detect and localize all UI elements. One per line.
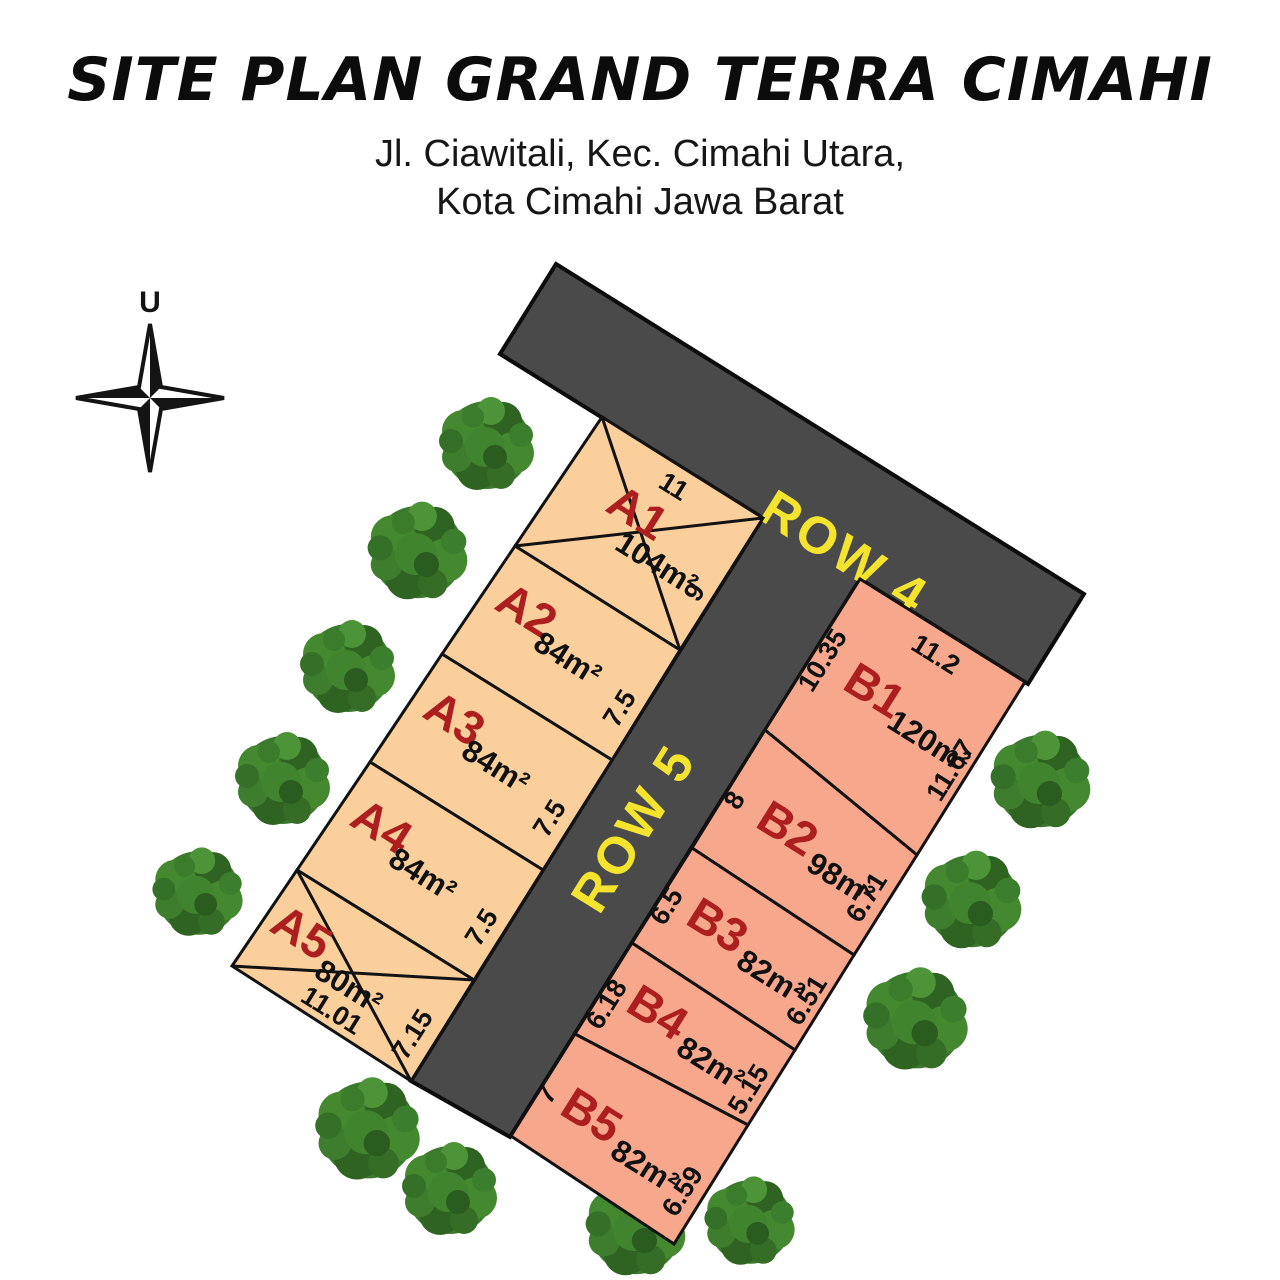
site-plan-canvas: SITE PLAN GRAND TERRA CIMAHI Jl. Ciawita… (0, 0, 1280, 1280)
address-line-2: Kota Cimahi Jawa Barat (436, 181, 844, 223)
north-indicator-label: U (139, 286, 161, 319)
compass-star-fill-east (150, 398, 224, 409)
compass-star-fill-north (150, 324, 161, 398)
tree-icon (439, 397, 534, 490)
header: SITE PLAN GRAND TERRA CIMAHI Jl. Ciawita… (67, 45, 1213, 223)
tree-icon (152, 847, 242, 935)
tree-icon (922, 851, 1022, 949)
tree-icon (300, 620, 395, 713)
tree-icon (704, 1176, 794, 1264)
site-plan-page: SITE PLAN GRAND TERRA CIMAHI Jl. Ciawita… (0, 0, 1280, 1280)
tree-icon (315, 1077, 420, 1179)
compass-star-fill-west (76, 387, 150, 398)
tree-icon (368, 502, 468, 600)
tree-icon (235, 732, 330, 825)
address-line-1: Jl. Ciawitali, Kec. Cimahi Utara, (375, 133, 905, 175)
compass-star-fill-south (139, 398, 150, 472)
tree-icon (402, 1142, 497, 1235)
compass-rose: U (76, 286, 224, 472)
tree-icon (991, 731, 1091, 829)
page-title: SITE PLAN GRAND TERRA CIMAHI (67, 45, 1213, 115)
tree-icon (863, 967, 968, 1069)
